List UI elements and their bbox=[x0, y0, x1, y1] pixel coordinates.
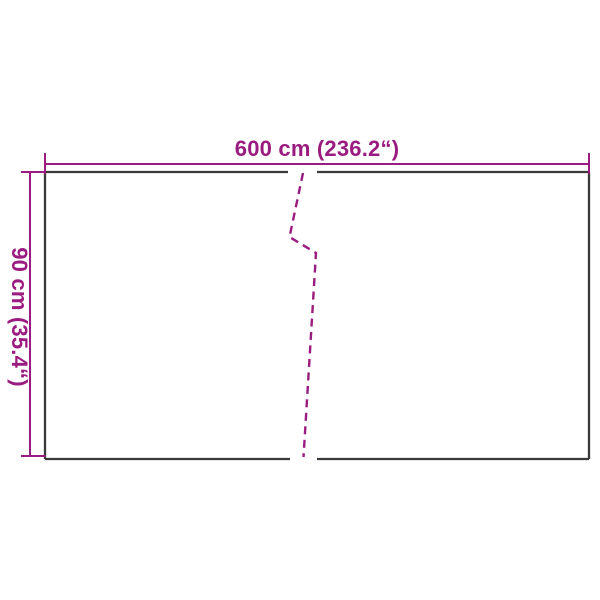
product-dimension-diagram: 600 cm (236.2“) 90 cm (35.4“) bbox=[0, 0, 600, 600]
width-dimension-label: 600 cm (236.2“) bbox=[235, 138, 399, 160]
break-line bbox=[290, 173, 317, 457]
height-dimension-label: 90 cm (35.4“) bbox=[8, 247, 30, 387]
diagram-drawing bbox=[0, 0, 600, 600]
panel-outline bbox=[45, 172, 589, 459]
